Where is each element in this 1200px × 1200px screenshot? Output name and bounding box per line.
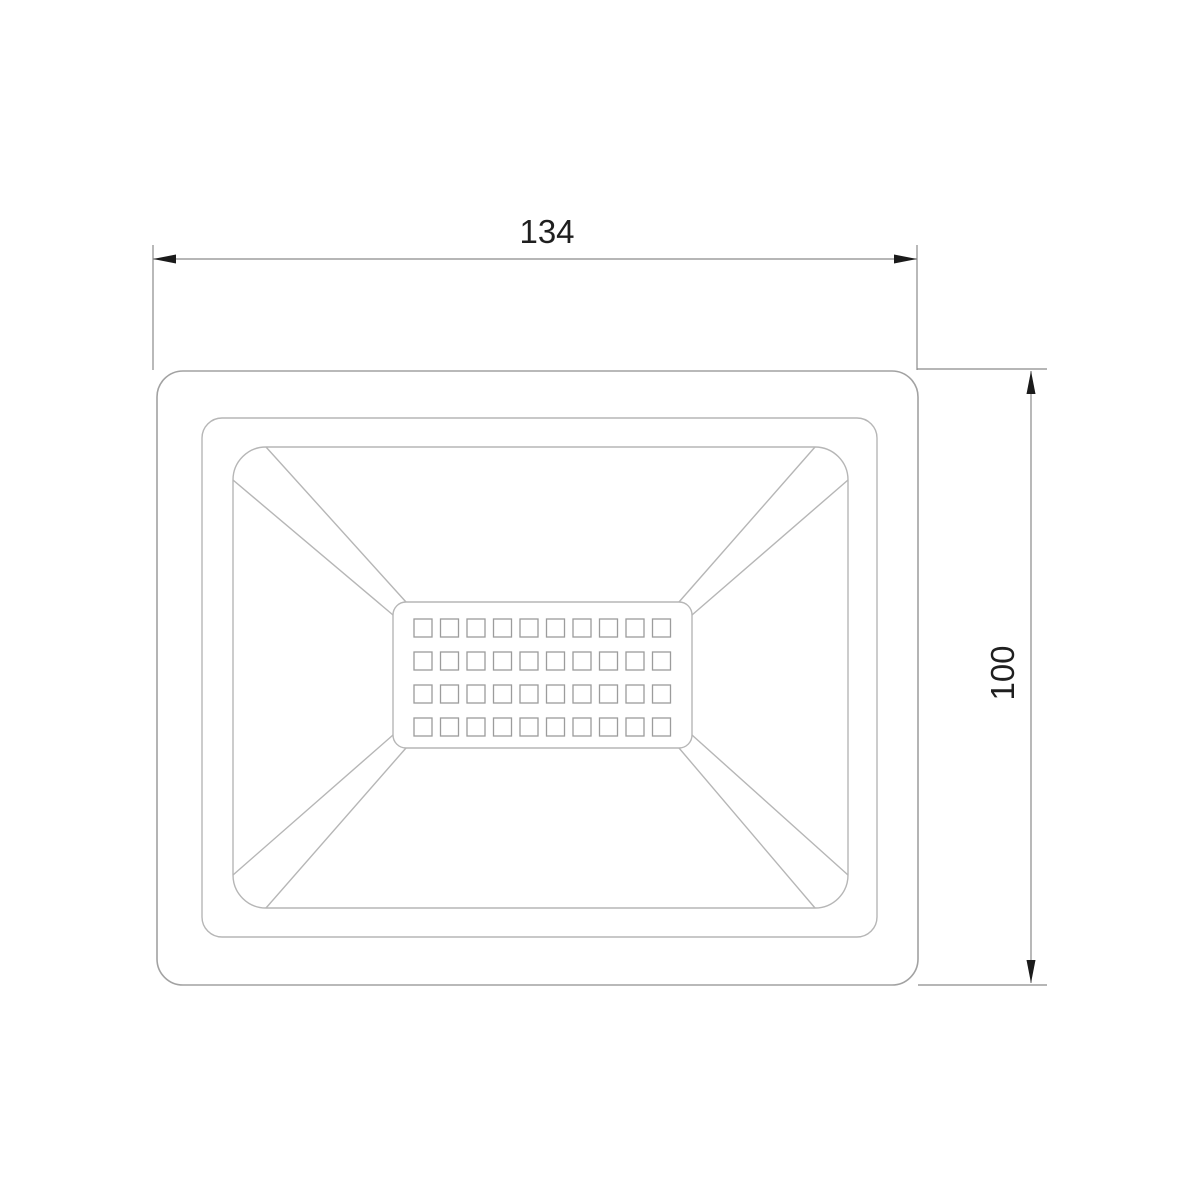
led-chip bbox=[441, 619, 459, 637]
technical-drawing-canvas: 134 100 bbox=[0, 0, 1200, 1200]
led-chip bbox=[467, 718, 485, 736]
led-chip bbox=[494, 718, 512, 736]
led-chip bbox=[626, 718, 644, 736]
led-chip bbox=[494, 685, 512, 703]
led-chip bbox=[414, 652, 432, 670]
reflector-facet-edge bbox=[692, 480, 848, 615]
led-chip bbox=[573, 619, 591, 637]
technical-drawing-page: 134 100 bbox=[0, 0, 1200, 1200]
reflector-facet-edges bbox=[233, 447, 848, 908]
reflector-facet-edge bbox=[233, 480, 393, 615]
led-chip bbox=[547, 718, 565, 736]
led-chip bbox=[441, 718, 459, 736]
floodlight-front-view bbox=[157, 371, 918, 985]
led-chip bbox=[520, 619, 538, 637]
led-chip bbox=[520, 718, 538, 736]
led-chip bbox=[653, 619, 671, 637]
led-chip bbox=[573, 718, 591, 736]
height-dimension-label: 100 bbox=[984, 645, 1021, 700]
led-chip bbox=[441, 685, 459, 703]
led-chip bbox=[494, 652, 512, 670]
reflector-facet-edge bbox=[266, 447, 406, 602]
led-chip bbox=[414, 685, 432, 703]
led-chip bbox=[467, 619, 485, 637]
led-chip bbox=[600, 619, 618, 637]
arrowhead-down bbox=[1027, 960, 1036, 983]
led-chip bbox=[573, 652, 591, 670]
housing-outer-outline bbox=[157, 371, 918, 985]
led-chip bbox=[547, 619, 565, 637]
led-chip bbox=[441, 652, 459, 670]
housing-inner-frame bbox=[202, 418, 877, 937]
led-chip bbox=[653, 652, 671, 670]
height-dimension: 100 bbox=[917, 369, 1047, 985]
led-chip bbox=[494, 619, 512, 637]
led-chip bbox=[626, 652, 644, 670]
led-chip bbox=[547, 652, 565, 670]
height-dimension-lines bbox=[917, 369, 1047, 985]
led-chip bbox=[520, 652, 538, 670]
arrowhead-right bbox=[894, 255, 917, 264]
led-chip bbox=[547, 685, 565, 703]
led-chip bbox=[653, 685, 671, 703]
led-panel bbox=[393, 602, 692, 748]
led-chip bbox=[467, 652, 485, 670]
led-chip bbox=[600, 718, 618, 736]
width-dimension-label: 134 bbox=[519, 213, 574, 250]
led-chip bbox=[653, 718, 671, 736]
led-chip bbox=[600, 652, 618, 670]
reflector-facet-edge bbox=[679, 447, 815, 602]
width-dimension: 134 bbox=[153, 213, 917, 370]
led-grid bbox=[414, 619, 671, 736]
led-chip bbox=[414, 619, 432, 637]
led-chip bbox=[626, 619, 644, 637]
led-chip bbox=[520, 685, 538, 703]
arrowhead-left bbox=[153, 255, 176, 264]
width-dimension-lines bbox=[153, 245, 917, 370]
led-chip bbox=[600, 685, 618, 703]
arrowhead-up bbox=[1027, 371, 1036, 394]
led-chip bbox=[414, 718, 432, 736]
led-chip bbox=[467, 685, 485, 703]
led-chip bbox=[573, 685, 591, 703]
led-chip bbox=[626, 685, 644, 703]
